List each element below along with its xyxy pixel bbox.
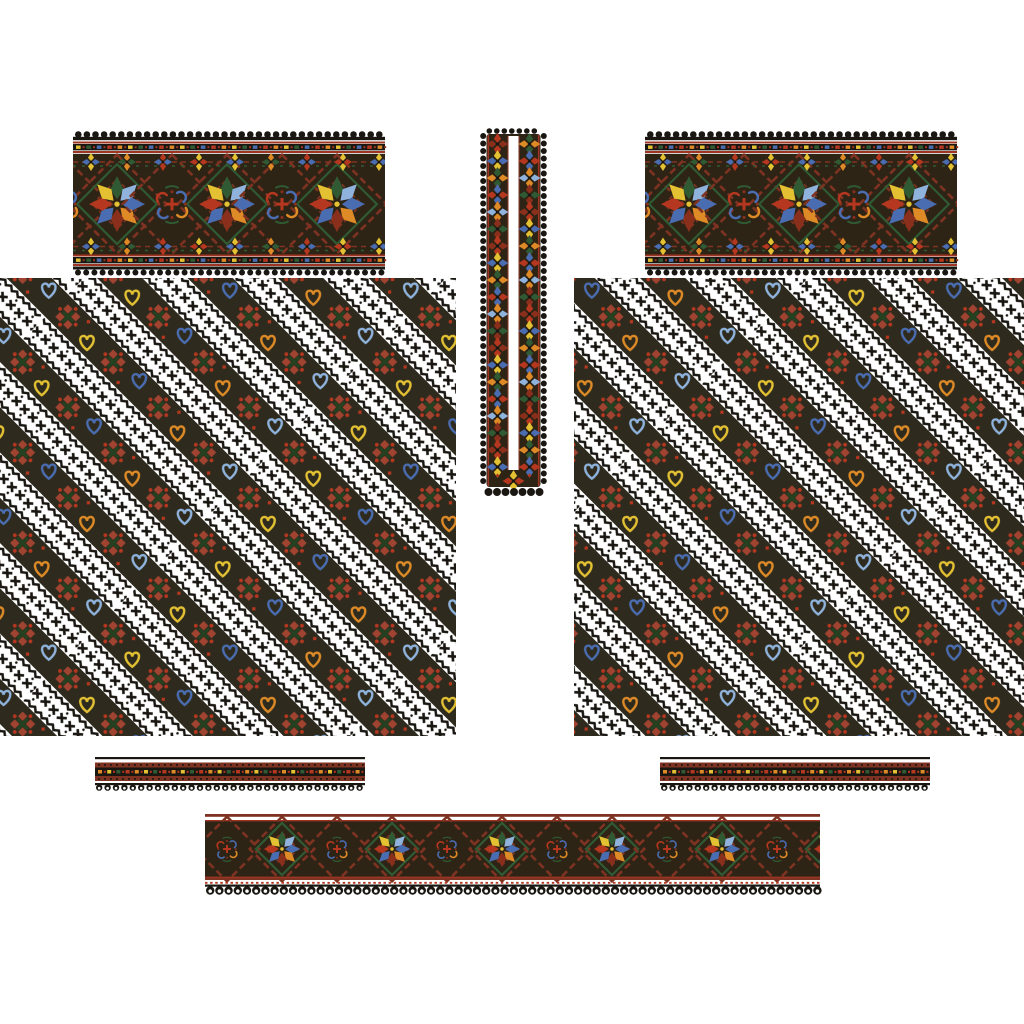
left-yoke-band [13, 131, 388, 275]
left-sleeve-panel [0, 278, 456, 736]
right-cuff-band [660, 757, 930, 791]
embroidery-pattern-sheet [0, 0, 1024, 1024]
left-cuff-band [95, 757, 365, 791]
neck-placket-strip [480, 128, 547, 496]
right-yoke-band [585, 131, 960, 275]
pattern-canvas [0, 0, 1024, 1024]
bottom-hem-band [195, 814, 864, 895]
right-sleeve-panel [574, 278, 1024, 736]
